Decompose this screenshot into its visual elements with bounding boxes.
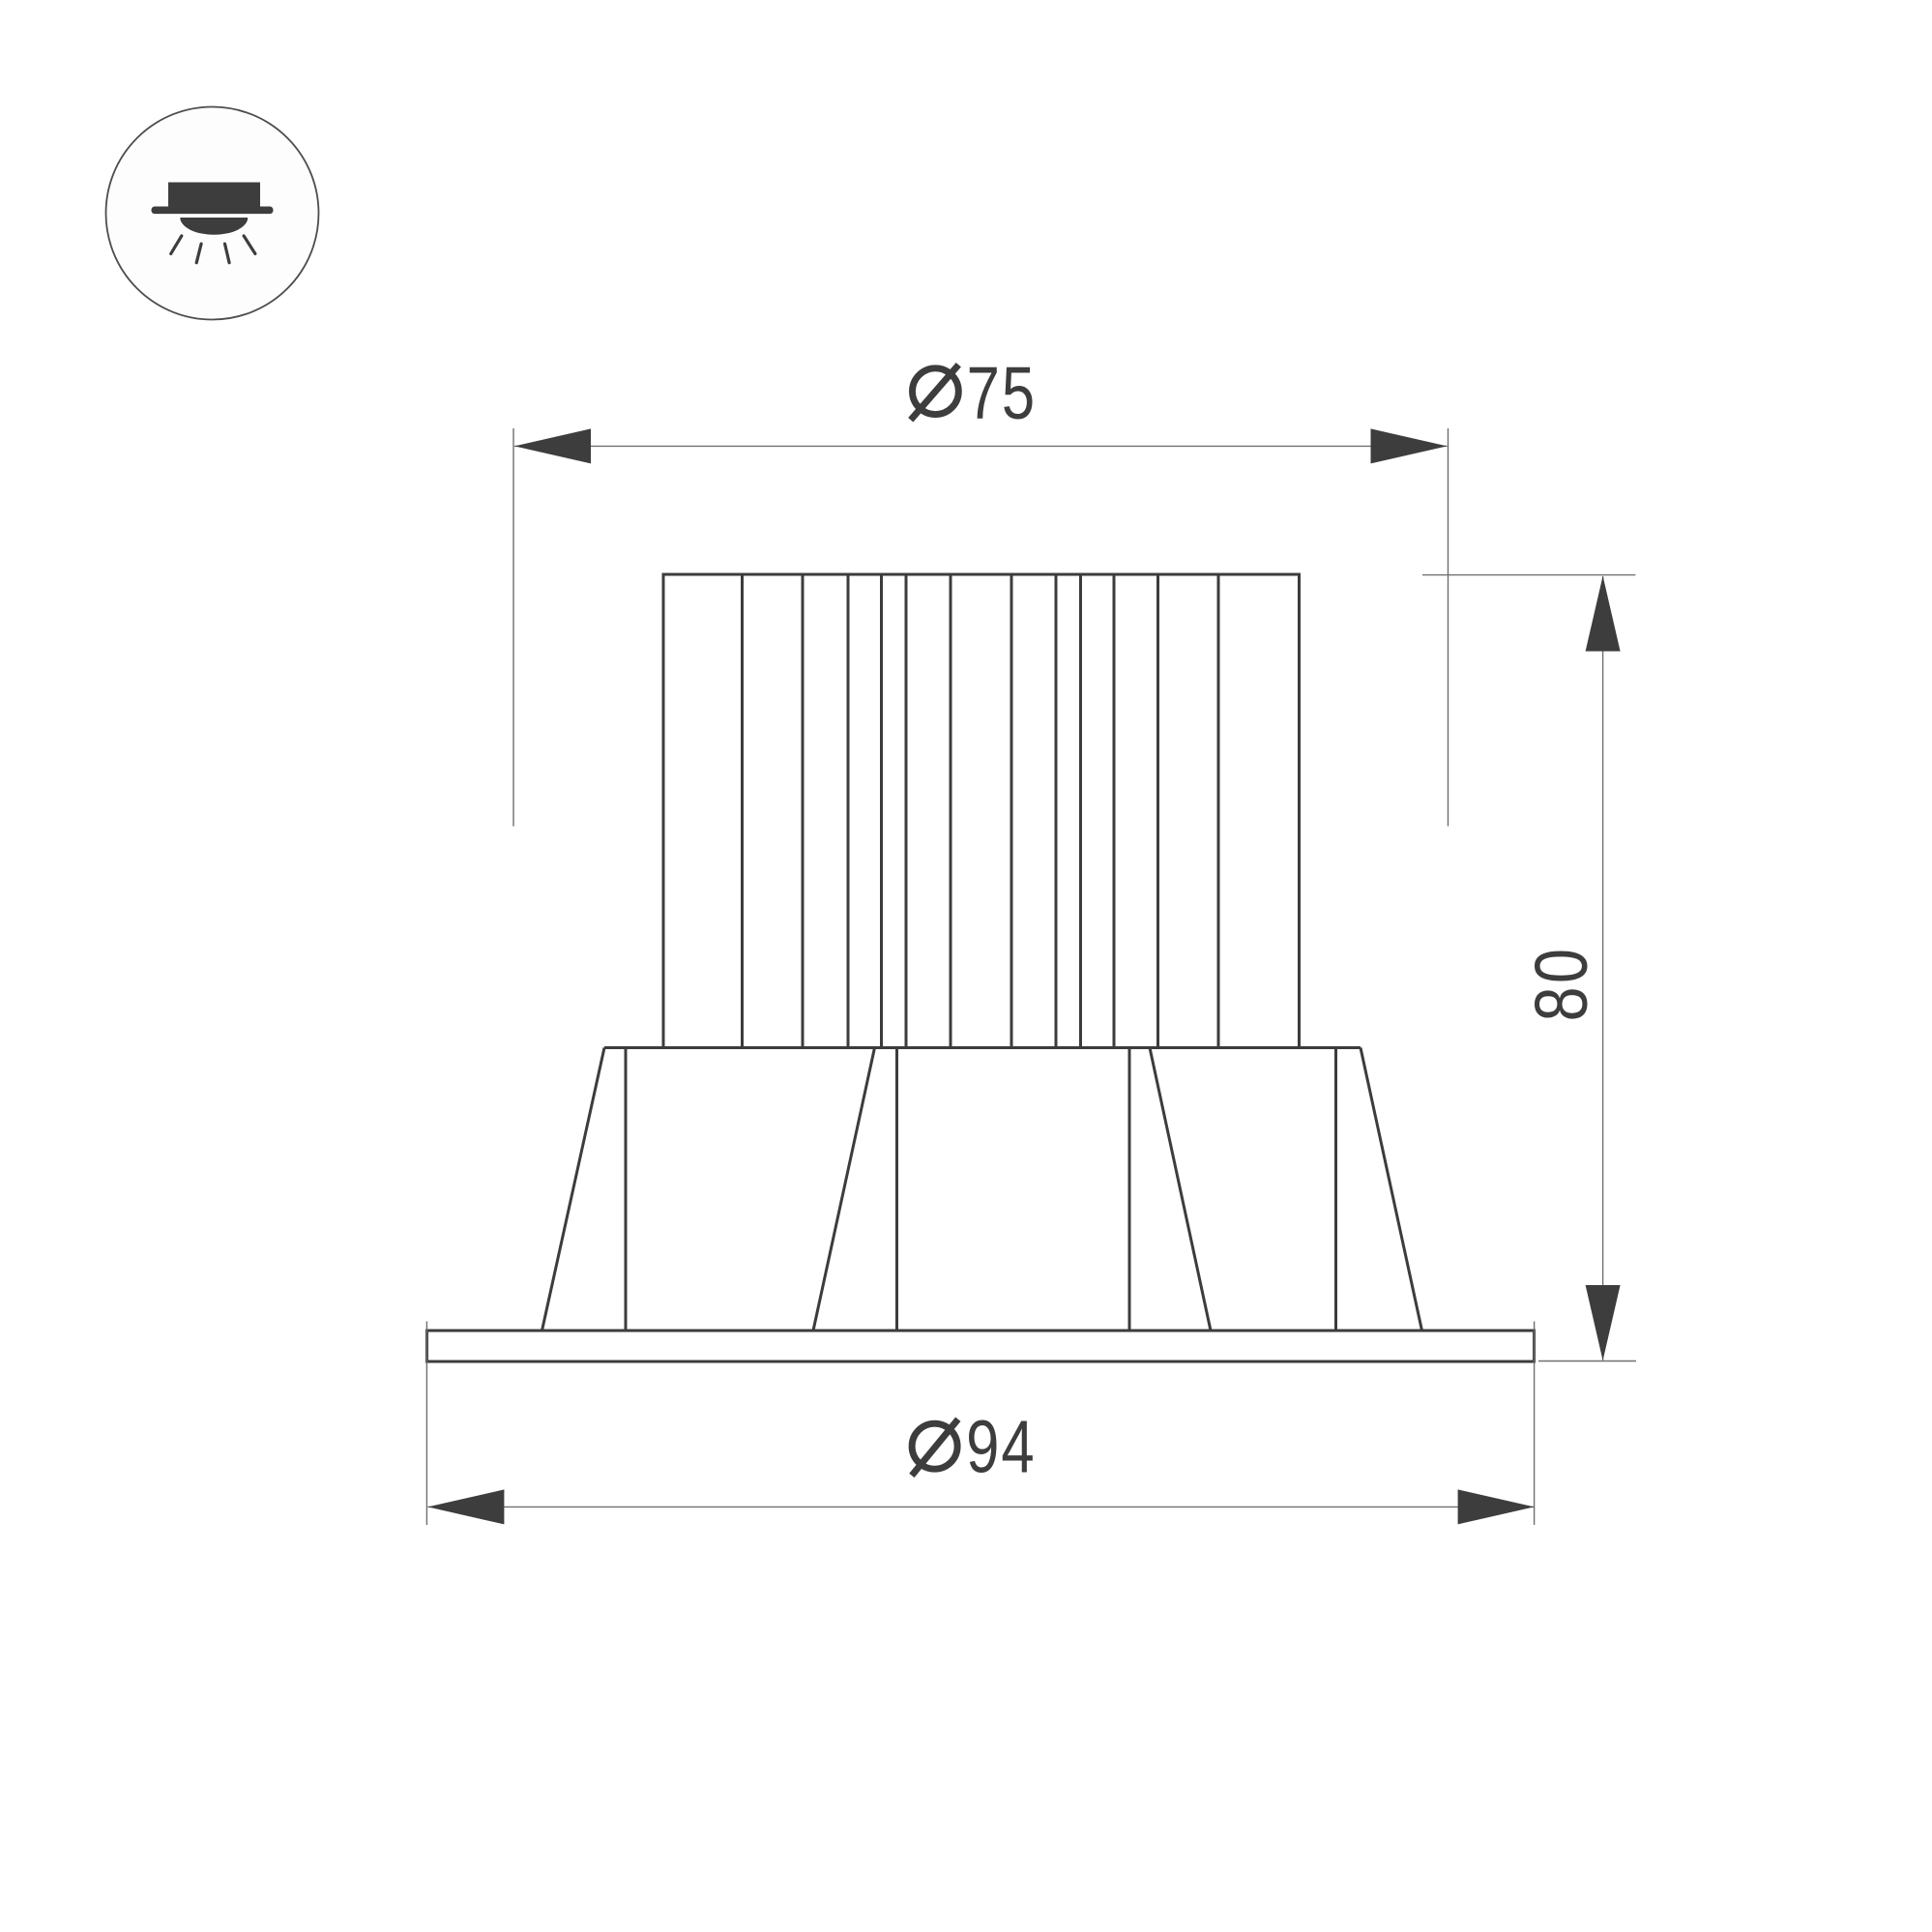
svg-text:80: 80 bbox=[1521, 946, 1604, 1022]
svg-text:75: 75 bbox=[967, 351, 1038, 434]
svg-text:94: 94 bbox=[966, 1405, 1037, 1488]
